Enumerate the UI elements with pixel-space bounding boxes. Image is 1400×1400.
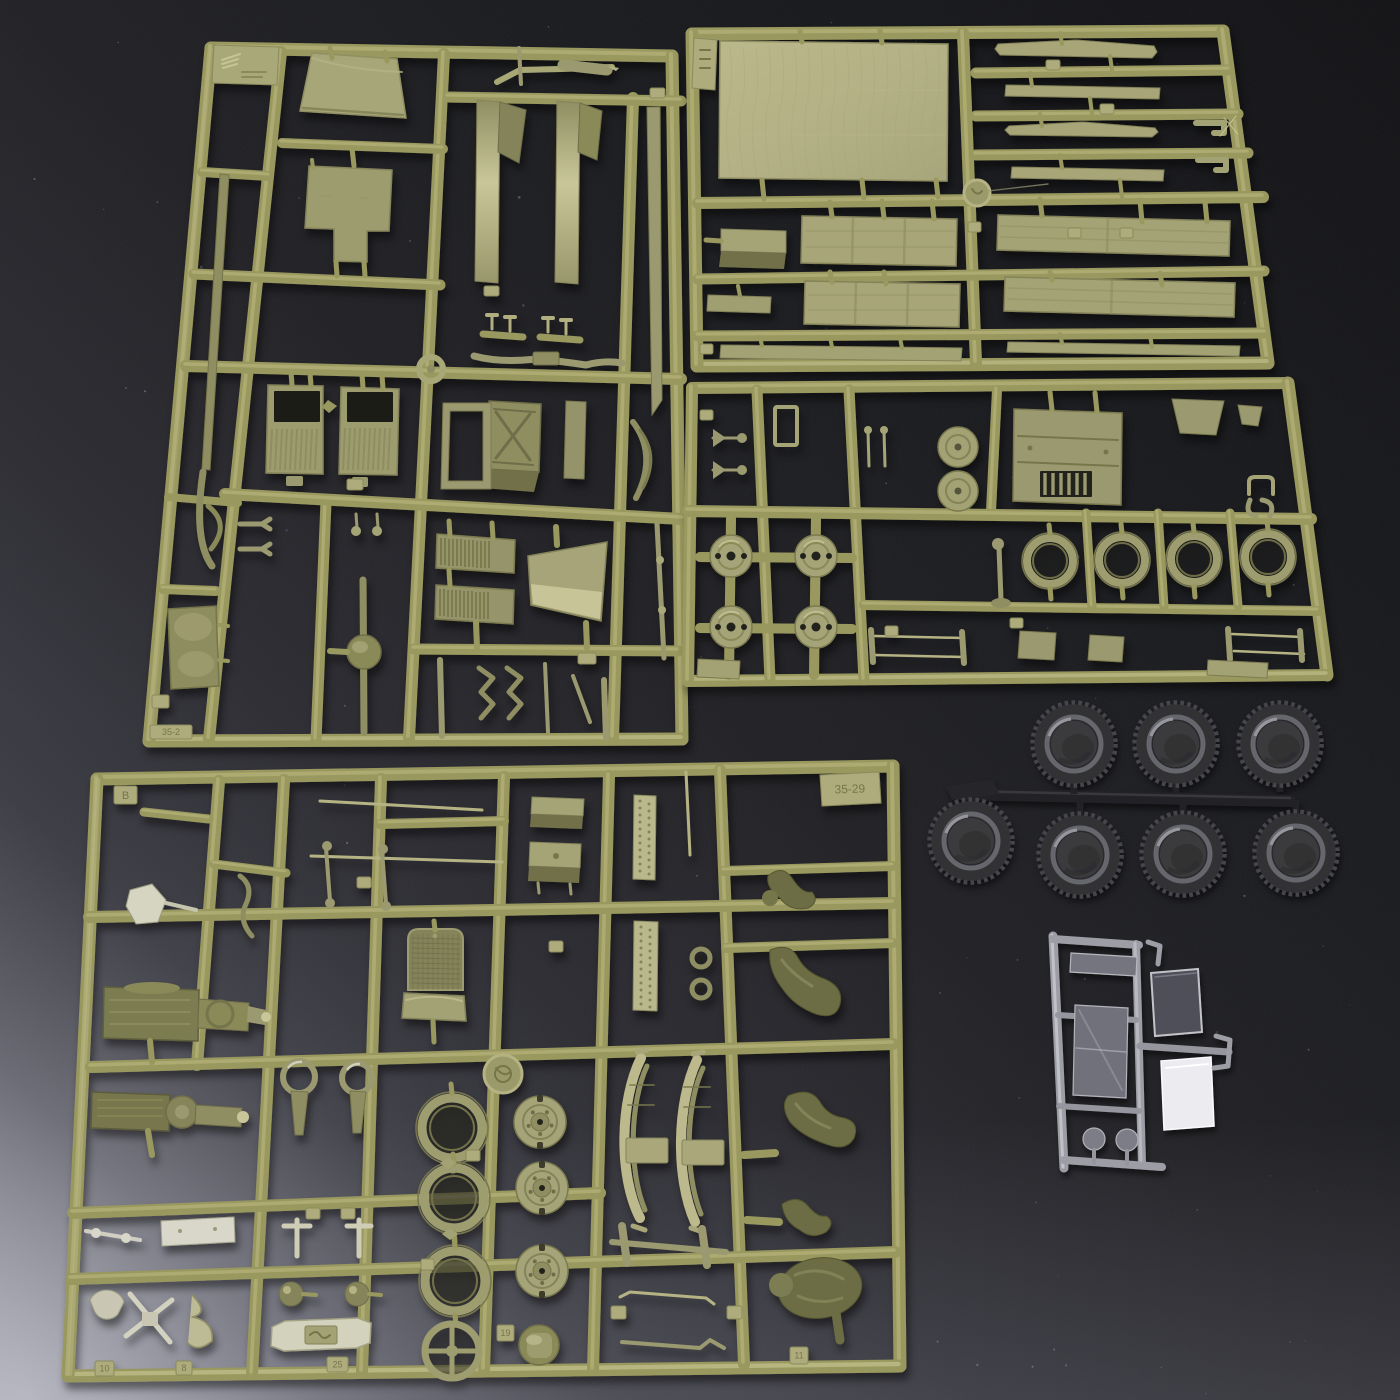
svg-text:19: 19 (500, 1328, 510, 1338)
svg-text:10: 10 (99, 1364, 109, 1374)
svg-text:11: 11 (794, 1351, 803, 1361)
svg-text:B: B (122, 790, 129, 802)
svg-text:35-2: 35-2 (162, 727, 180, 737)
svg-text:25: 25 (332, 1360, 342, 1370)
svg-text:8: 8 (181, 1363, 186, 1373)
svg-text:35-29: 35-29 (834, 781, 865, 796)
